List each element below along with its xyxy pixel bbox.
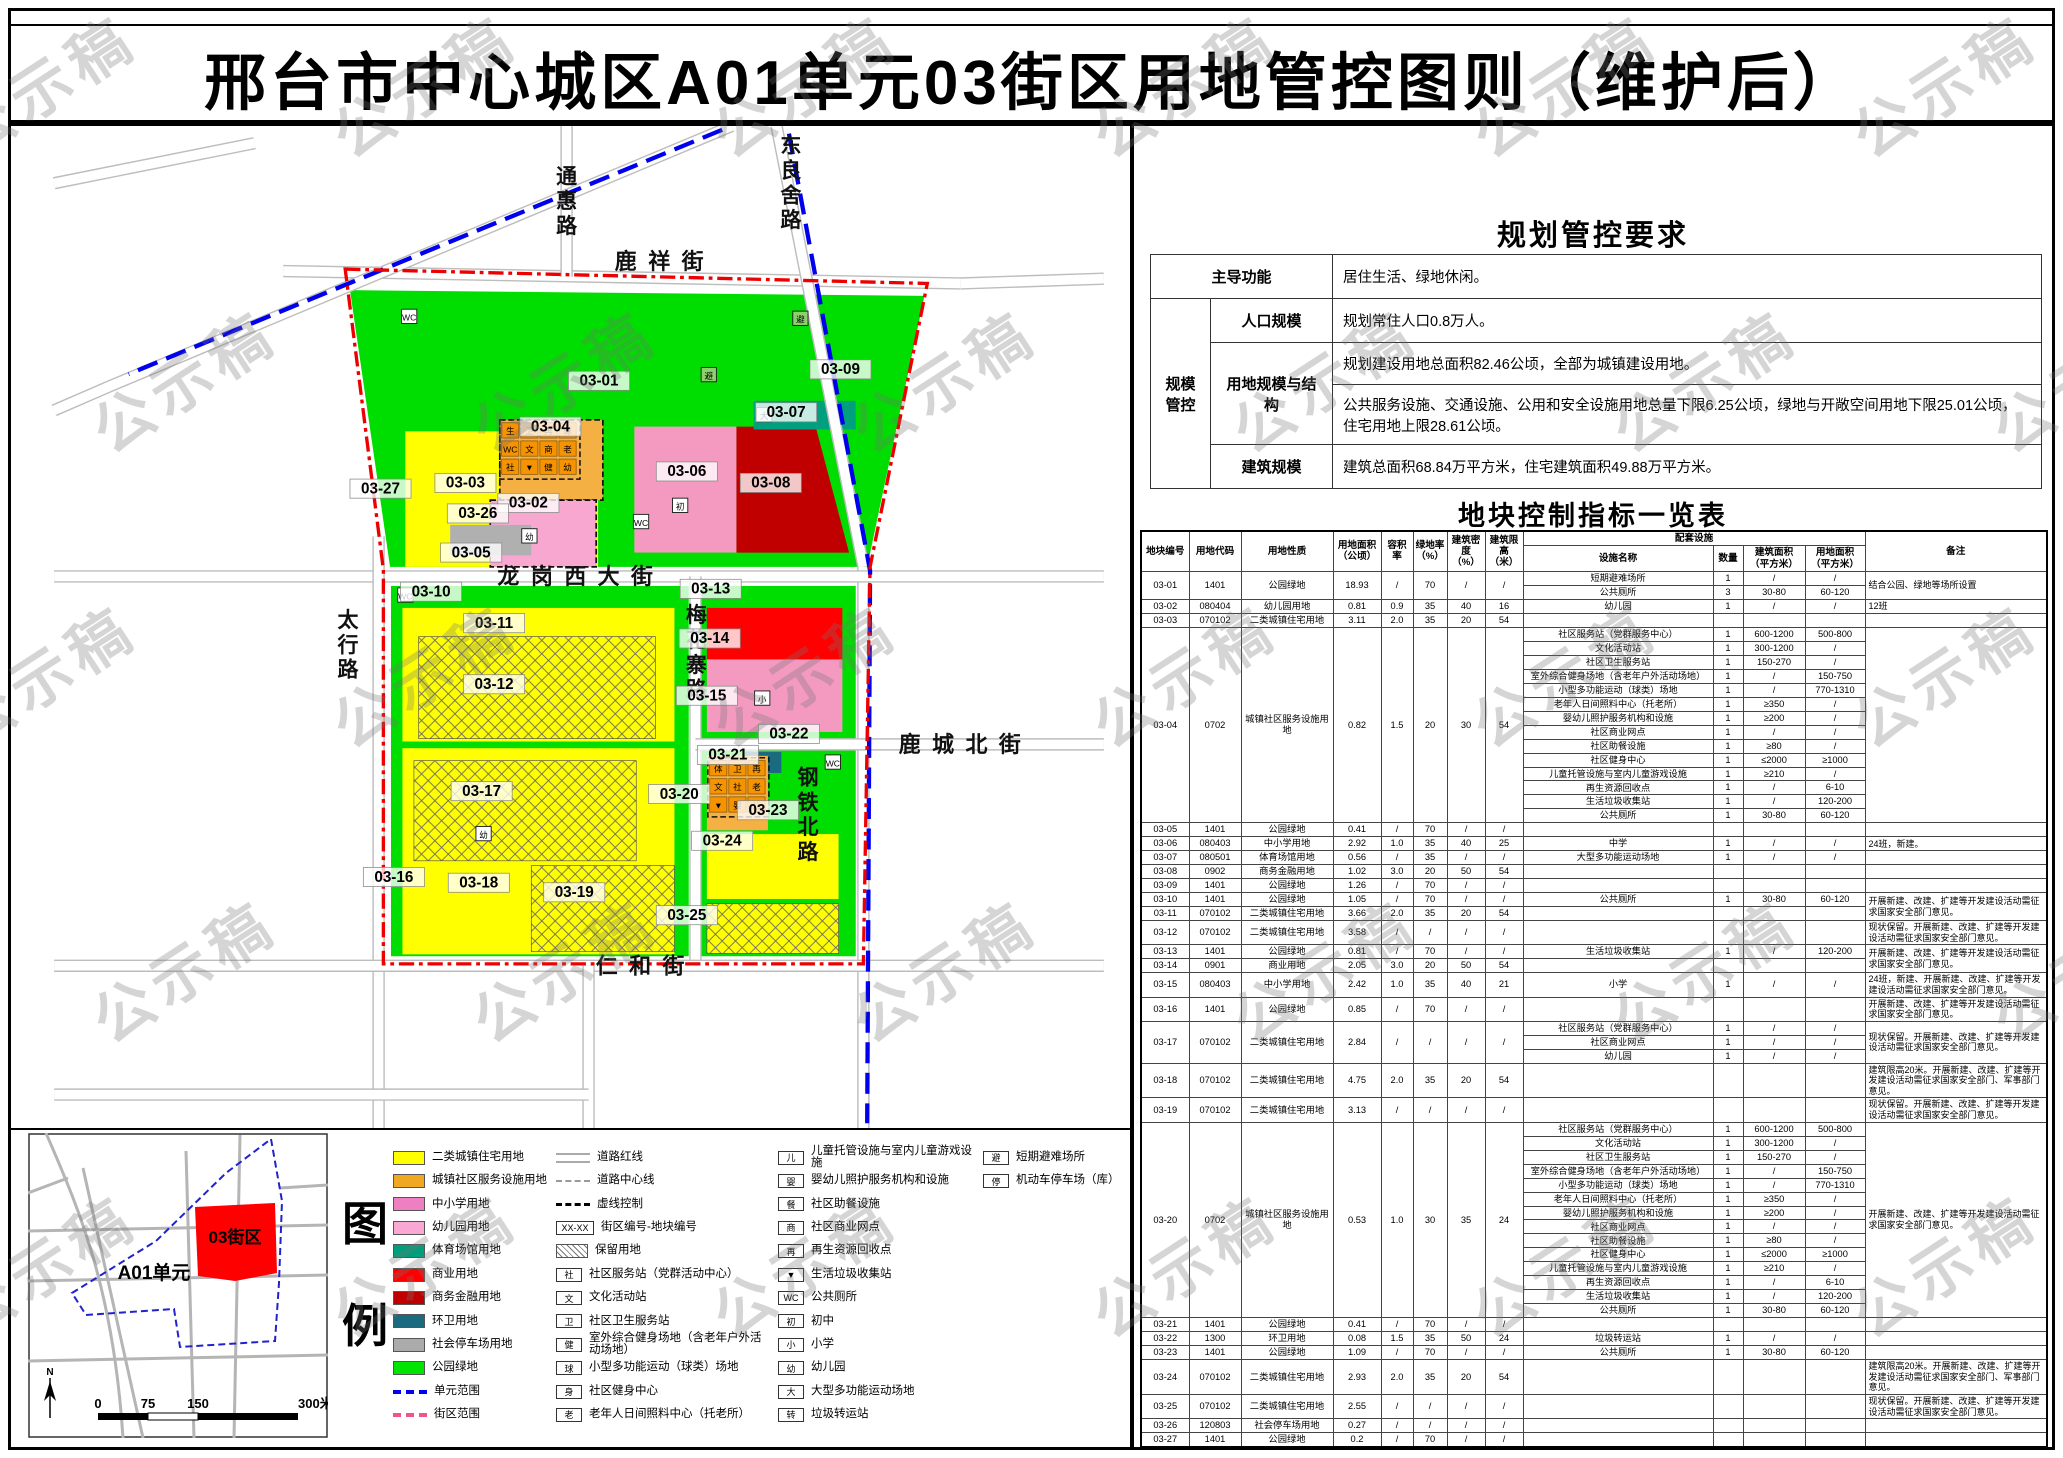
c-fname (1523, 997, 1713, 1021)
legend-label: 社区服务站（党群活动中心） (589, 1269, 739, 1281)
c-fname (1523, 879, 1713, 893)
c-height: 24 (1485, 1122, 1523, 1318)
svg-text:文: 文 (525, 443, 534, 454)
c-fqty: 1 (1713, 1049, 1743, 1063)
plot-row-03-13: 03-131401公园绿地0.81/70//生活垃圾收集站1/120-200开展… (1141, 945, 2047, 959)
c-code: 080404 (1189, 599, 1241, 613)
col-header: 备注 (1865, 531, 2047, 571)
c-flarea (1805, 865, 1865, 879)
legend-label: 短期避难场所 (1016, 1152, 1085, 1164)
c-id: 03-01 (1141, 571, 1189, 599)
c-area: 3.58 (1333, 921, 1381, 945)
c-fname (1523, 907, 1713, 921)
plot-control-table-title: 地块控制指标一览表 (1136, 494, 2050, 533)
c-use: 二类城镇住宅用地 (1241, 921, 1333, 945)
zone-label-03-17: 03-17 (451, 782, 512, 801)
c-height: 54 (1485, 1063, 1523, 1098)
c-fbarea: 30-80 (1743, 809, 1805, 823)
c-area: 0.41 (1333, 823, 1381, 837)
legend-label: 儿童托管设施与室内儿童游戏设施 (811, 1146, 983, 1169)
legend-label: 城镇社区服务设施用地 (432, 1175, 547, 1187)
c-flarea: 6-10 (1805, 1276, 1865, 1290)
c-fqty: 1 (1713, 795, 1743, 809)
c-height: / (1485, 1318, 1523, 1332)
c-id: 03-18 (1141, 1063, 1189, 1098)
plot-row-03-24: 03-24070102二类城镇住宅用地2.932.0352054建筑限高20米。… (1141, 1360, 2047, 1395)
c-id: 03-07 (1141, 851, 1189, 865)
c-fqty (1713, 1433, 1743, 1447)
c-note (1865, 1419, 2047, 1433)
c-far: / (1381, 879, 1413, 893)
legend-heading-1: 图 (340, 1188, 390, 1254)
legend-swatch (393, 1221, 425, 1235)
zone-03-25-hatch (707, 904, 839, 954)
c-flarea: 150-750 (1805, 1164, 1865, 1178)
svg-text:幼: 幼 (563, 461, 572, 472)
svg-text:03-10: 03-10 (412, 583, 451, 600)
plot-control-table: 地块编号用地代码用地性质用地面积 （公顷）容积率绿地率 （%）建筑密度 （%）建… (1140, 530, 2048, 1448)
plot-control-table-wrap: 地块编号用地代码用地性质用地面积 （公顷）容积率绿地率 （%）建筑密度 （%）建… (1140, 530, 2052, 1458)
c-height: 25 (1485, 837, 1523, 851)
c-fqty: 1 (1713, 893, 1743, 907)
c-green: 35 (1413, 837, 1447, 851)
c-flarea: / (1805, 973, 1865, 997)
c-height: 24 (1485, 1332, 1523, 1346)
svg-text:03-08: 03-08 (751, 475, 791, 492)
c-density: / (1447, 893, 1485, 907)
c-fqty: 1 (1713, 753, 1743, 767)
facility-icon-小: 小 (778, 1338, 804, 1352)
plot-row-03-12: 03-12070102二类城镇住宅用地3.58////现状保留。开展新建、改建、… (1141, 921, 2047, 945)
svg-text:03-03: 03-03 (446, 475, 485, 492)
legend-label: 单元范围 (434, 1386, 480, 1398)
street-label-通惠路: 通惠路 (556, 165, 578, 238)
c-fname (1523, 823, 1713, 837)
c-fqty (1713, 959, 1743, 973)
c-fname: 生活垃圾收集站 (1523, 1290, 1713, 1304)
c-density: / (1447, 1021, 1485, 1063)
c-density: 20 (1447, 1360, 1485, 1395)
c-code: 1401 (1189, 1346, 1241, 1360)
legend-label: 社区卫生服务站 (589, 1316, 670, 1328)
c-flarea: / (1805, 1206, 1865, 1220)
c-note: 建筑限高20米。开展新建、改建、扩建等开发建设活动需征求国家安全部门、军事部门意… (1865, 1063, 2047, 1098)
zone-label-03-24: 03-24 (692, 831, 753, 850)
c-fqty (1713, 921, 1743, 945)
c-fbarea (1743, 865, 1805, 879)
c-fbarea: / (1743, 571, 1805, 585)
street-fill-11 (54, 143, 254, 183)
legend-item-幼儿园: 幼幼儿园 (778, 1357, 983, 1380)
legend-swatch (393, 1174, 425, 1188)
facility-icon-停: 停 (983, 1174, 1009, 1188)
c-green: / (1413, 1021, 1447, 1063)
legend-item-环卫用地: 环卫用地 (393, 1310, 547, 1333)
c-area: 0.08 (1333, 1332, 1381, 1346)
zone-label-03-10: 03-10 (401, 582, 462, 601)
c-fqty: 1 (1713, 837, 1743, 851)
c-fqty: 1 (1713, 1276, 1743, 1290)
c-code: 070102 (1189, 1021, 1241, 1063)
col-header: 用地代码 (1189, 531, 1241, 571)
svg-text:03-18: 03-18 (459, 875, 499, 892)
c-use: 商业用地 (1241, 959, 1333, 973)
legend-label: 大型多功能运动场地 (811, 1386, 915, 1398)
legend-item-室外综合健身场地（含老年户外活动场地）: 健室外综合健身场地（含老年户外活动场地） (556, 1333, 771, 1356)
zone-label-03-08: 03-08 (740, 473, 801, 492)
c-fname: 公共厕所 (1523, 809, 1713, 823)
map-marker-WC-10: WC (825, 755, 840, 769)
page-title: 邢台市中心城区A01单元03街区用地管控图则（维护后） (0, 32, 2063, 122)
c-fqty: 1 (1713, 683, 1743, 697)
c-far: 3.0 (1381, 959, 1413, 973)
c-fname (1523, 1433, 1713, 1447)
col-header: 用地性质 (1241, 531, 1333, 571)
c-area: 2.84 (1333, 1021, 1381, 1063)
c-area: 18.93 (1333, 571, 1381, 599)
legend-item-单元范围: 单元范围 (393, 1380, 547, 1403)
c-fbarea: 30-80 (1743, 1304, 1805, 1318)
legend-swatch (393, 1291, 425, 1305)
c-id: 03-21 (1141, 1318, 1189, 1332)
legend-label: 道路中心线 (597, 1175, 655, 1187)
c-area: 0.85 (1333, 997, 1381, 1021)
c-fbarea: ≤2000 (1743, 1248, 1805, 1262)
legend-item-垃圾转运站: 转垃圾转运站 (778, 1403, 983, 1426)
c-note (1865, 879, 2047, 893)
c-green: / (1413, 1098, 1447, 1122)
locator-unit-label: A01单元 (118, 1261, 191, 1284)
c-area: 0.56 (1333, 851, 1381, 865)
c-flarea (1805, 1433, 1865, 1447)
legend-item-街区编号-地块编号: XX-XX街区编号-地块编号 (556, 1216, 771, 1239)
c-code: 080403 (1189, 973, 1241, 997)
plot-row-03-27: 03-271401公园绿地0.2/70// (1141, 1433, 2047, 1447)
c-height: 54 (1485, 959, 1523, 973)
road-centerline-icon (556, 1180, 590, 1182)
c-density: / (1447, 571, 1485, 599)
c-area: 0.81 (1333, 599, 1381, 613)
c-fqty (1713, 879, 1743, 893)
c-area: 2.55 (1333, 1395, 1381, 1419)
c-id: 03-06 (1141, 837, 1189, 851)
c-height: / (1485, 1021, 1523, 1063)
c-flarea (1805, 879, 1865, 893)
c-far: 2.0 (1381, 1063, 1413, 1098)
legend-item-商业用地: 商业用地 (393, 1263, 547, 1286)
c-height: / (1485, 1098, 1523, 1122)
c-density: / (1447, 879, 1485, 893)
svg-text:03-20: 03-20 (660, 786, 699, 803)
c-fbarea: / (1743, 1220, 1805, 1234)
c-height: 54 (1485, 1360, 1523, 1395)
c-area: 0.81 (1333, 945, 1381, 959)
c-code: 080403 (1189, 837, 1241, 851)
svg-text:WC: WC (634, 518, 648, 528)
c-fqty (1713, 823, 1743, 837)
legend-swatch (393, 1314, 425, 1328)
legend-item-短期避难场所: 避短期避难场所 (983, 1146, 1120, 1169)
c-fqty: 1 (1713, 945, 1743, 959)
legend-swatch (393, 1151, 425, 1165)
c-fbarea: / (1743, 1021, 1805, 1035)
legend-item-虚线控制: 虚线控制 (556, 1193, 771, 1216)
c-green: 35 (1413, 907, 1447, 921)
c-flarea: / (1805, 1234, 1865, 1248)
c-fqty: 3 (1713, 585, 1743, 599)
street-label-太行路: 太行路 (337, 609, 360, 682)
c-fbarea: ≥200 (1743, 711, 1805, 725)
c-green: / (1413, 1395, 1447, 1419)
c-fqty: 1 (1713, 1346, 1743, 1360)
c-note: 现状保留。开展新建、改建、扩建等开发建设活动需征求国家安全部门意见。 (1865, 1098, 2047, 1122)
legend-label: 商业用地 (432, 1269, 478, 1281)
c-area: 0.2 (1333, 1433, 1381, 1447)
zone-label-03-05: 03-05 (441, 543, 502, 562)
zone-label-03-06: 03-06 (656, 462, 717, 481)
svg-text:03-11: 03-11 (475, 615, 514, 632)
c-fname: 儿童托管设施与室内儿童游戏设施 (1523, 1262, 1713, 1276)
c-note: 24班，新建、开展新建、改建、扩建等开发建设活动需征求国家安全部门意见。 (1865, 973, 2047, 997)
zone-label-03-03: 03-03 (435, 473, 496, 492)
svg-text:初: 初 (676, 501, 685, 512)
c-note: 现状保留。开展新建、改建、扩建等开发建设活动需征求国家安全部门意见。 (1865, 1021, 2047, 1063)
c-flarea: / (1805, 1192, 1865, 1206)
legend-column-lines-facilities: 道路红线道路中心线虚线控制XX-XX街区编号-地块编号保留用地社社区服务站（党群… (556, 1146, 771, 1427)
c-density: / (1447, 851, 1485, 865)
legend-label: 老年人日间照料中心（托老所） (589, 1409, 750, 1421)
c-code: 1401 (1189, 1318, 1241, 1332)
facility-icon-儿: 儿 (778, 1151, 804, 1165)
legend-item-文化活动站: 文文化活动站 (556, 1286, 771, 1309)
c-fbarea (1743, 1419, 1805, 1433)
plot-row-03-17: 03-17070102二类城镇住宅用地2.84////社区服务站（党群服务中心）… (1141, 1021, 2047, 1035)
zone-03-12-hatch (419, 637, 656, 739)
plot-row-03-25: 03-25070102二类城镇住宅用地2.55////现状保留。开展新建、改建、… (1141, 1395, 2047, 1419)
c-use: 二类城镇住宅用地 (1241, 907, 1333, 921)
svg-text:WC: WC (826, 758, 840, 768)
legend-label: 小学 (811, 1339, 834, 1351)
legend-label: 社会停车场用地 (432, 1339, 513, 1351)
c-flarea (1805, 1318, 1865, 1332)
c-density: 20 (1447, 613, 1485, 627)
c-fbarea (1743, 1098, 1805, 1122)
c-green: 70 (1413, 823, 1447, 837)
c-fqty: 1 (1713, 1248, 1743, 1262)
plot-row-03-07: 03-07080501体育场馆用地0.56/35//大型多功能运动场地1// (1141, 851, 2047, 865)
reserved-land-icon (556, 1244, 588, 1258)
c-flarea (1805, 823, 1865, 837)
c-fbarea: ≥80 (1743, 739, 1805, 753)
zone-label-03-15: 03-15 (676, 686, 737, 705)
c-use: 公园绿地 (1241, 571, 1333, 599)
c-note: 12班 (1865, 599, 2047, 613)
c-fbarea: / (1743, 1035, 1805, 1049)
c-fname: 社区卫生服务站 (1523, 655, 1713, 669)
facility-icon-避: 避 (983, 1151, 1009, 1165)
c-height: / (1485, 571, 1523, 599)
c-far: 2.0 (1381, 613, 1413, 627)
c-fname: 社区健身中心 (1523, 1248, 1713, 1262)
c-far: / (1381, 945, 1413, 959)
c-green: 70 (1413, 879, 1447, 893)
c-use: 公园绿地 (1241, 1433, 1333, 1447)
c-fname (1523, 921, 1713, 945)
legend-item-道路红线: 道路红线 (556, 1146, 771, 1169)
c-use: 二类城镇住宅用地 (1241, 1021, 1333, 1063)
c-flarea: 500-800 (1805, 627, 1865, 641)
locator-frame (29, 1134, 327, 1437)
legend-label: 垃圾转运站 (811, 1409, 869, 1421)
c-use: 二类城镇住宅用地 (1241, 1395, 1333, 1419)
c-flarea: / (1805, 725, 1865, 739)
legend-item-机动车停车场（库）: 停机动车停车场（库） (983, 1169, 1120, 1192)
legend-swatch (393, 1338, 425, 1352)
svg-text:03-16: 03-16 (374, 869, 413, 886)
c-id: 03-09 (1141, 879, 1189, 893)
c-fqty: 1 (1713, 1304, 1743, 1318)
c-height: 16 (1485, 599, 1523, 613)
c-fname: 幼儿园 (1523, 599, 1713, 613)
c-fname: 中学 (1523, 837, 1713, 851)
c-flarea: 60-120 (1805, 1304, 1865, 1318)
c-density: / (1447, 1419, 1485, 1433)
svg-text:老: 老 (752, 781, 761, 792)
c-far: / (1381, 997, 1413, 1021)
plot-row-03-06: 03-06080403中小学用地2.921.0354025中学1//24班，新建… (1141, 837, 2047, 851)
plan-sheet: 邢台市中心城区A01单元03街区用地管控图则（维护后） 生卫再球WC文商老社▼健… (0, 0, 2063, 1458)
c-fbarea (1743, 1318, 1805, 1332)
zone-label-03-12: 03-12 (464, 675, 525, 694)
c-fqty: 1 (1713, 1206, 1743, 1220)
c-fname (1523, 613, 1713, 627)
c-fqty: 1 (1713, 1136, 1743, 1150)
c-fbarea: ≥80 (1743, 1234, 1805, 1248)
legend-item-再生资源回收点: 再再生资源回收点 (778, 1240, 983, 1263)
plot-row-03-10: 03-101401公园绿地1.05/70//公共厕所130-8060-120开展… (1141, 893, 2047, 907)
facility-icon-身: 身 (556, 1385, 582, 1399)
c-id: 03-04 (1141, 627, 1189, 823)
c-fname: 小型多功能运动（球类）场地 (1523, 683, 1713, 697)
c-green: 70 (1413, 893, 1447, 907)
svg-text:避: 避 (796, 314, 805, 325)
svg-text:健: 健 (544, 462, 553, 472)
c-fbarea: 30-80 (1743, 585, 1805, 599)
c-fqty: 1 (1713, 1035, 1743, 1049)
c-flarea: / (1805, 571, 1865, 585)
legend-item-二类城镇住宅用地: 二类城镇住宅用地 (393, 1146, 547, 1169)
c-code: 1401 (1189, 945, 1241, 959)
c-flarea: 500-800 (1805, 1122, 1865, 1136)
c-far: / (1381, 851, 1413, 865)
c-flarea: 6-10 (1805, 781, 1865, 795)
c-fbarea (1743, 823, 1805, 837)
legend-label: 街区编号-地块编号 (601, 1222, 697, 1234)
c-use: 环卫用地 (1241, 1332, 1333, 1346)
c-fbarea (1743, 1360, 1805, 1395)
c-fname: 社区商业网点 (1523, 725, 1713, 739)
c-fqty (1713, 1098, 1743, 1122)
svg-text:文: 文 (714, 781, 723, 792)
legend-label: 保留用地 (595, 1245, 641, 1257)
legend-item-婴幼儿照护服务机构和设施: 婴婴幼儿照护服务机构和设施 (778, 1169, 983, 1192)
svg-text:幼: 幼 (479, 829, 488, 840)
c-note: 现状保留。开展新建、改建、扩建等开发建设活动需征求国家安全部门意见。 (1865, 921, 2047, 945)
c-fname: 儿童托管设施与室内儿童游戏设施 (1523, 767, 1713, 781)
row-value: 规划常住人口0.8万人。 (1333, 299, 2042, 343)
facility-icon-▼: ▼ (778, 1268, 804, 1282)
c-fbarea: 300-1200 (1743, 1136, 1805, 1150)
c-area: 2.93 (1333, 1360, 1381, 1395)
plot-row-03-19: 03-19070102二类城镇住宅用地3.13////现状保留。开展新建、改建、… (1141, 1098, 2047, 1122)
c-flarea: / (1805, 1150, 1865, 1164)
legend-item-幼儿园用地: 幼儿园用地 (393, 1216, 547, 1239)
c-green: 70 (1413, 571, 1447, 599)
c-fname: 公共厕所 (1523, 1304, 1713, 1318)
c-use: 公园绿地 (1241, 997, 1333, 1021)
svg-text:150: 150 (187, 1396, 209, 1411)
legend-item-小学: 小小学 (778, 1333, 983, 1356)
c-id: 03-26 (1141, 1419, 1189, 1433)
legend-item-生活垃圾收集站: ▼生活垃圾收集站 (778, 1263, 983, 1286)
c-flarea (1805, 1419, 1865, 1433)
c-note: 24班，新建。 (1865, 837, 2047, 851)
c-area: 2.42 (1333, 973, 1381, 997)
c-note (1865, 613, 2047, 627)
c-code: 070102 (1189, 1063, 1241, 1098)
c-height: / (1485, 851, 1523, 865)
c-flarea: ≥1000 (1805, 1248, 1865, 1262)
svg-text:03-07: 03-07 (767, 404, 806, 421)
legend-label: 初中 (811, 1316, 834, 1328)
road-redline-icon (556, 1153, 590, 1163)
c-fqty: 1 (1713, 739, 1743, 753)
c-id: 03-25 (1141, 1395, 1189, 1419)
zone-label-03-21: 03-21 (697, 745, 758, 764)
svg-text:03-25: 03-25 (667, 907, 707, 924)
c-fbarea (1743, 959, 1805, 973)
c-fqty: 1 (1713, 851, 1743, 865)
c-flarea: / (1805, 641, 1865, 655)
zone-label-03-09: 03-09 (810, 360, 871, 379)
c-fname: 短期避难场所 (1523, 571, 1713, 585)
legend-item-儿童托管设施与室内儿童游戏设施: 儿儿童托管设施与室内儿童游戏设施 (778, 1146, 983, 1169)
legend-label: 社区商业网点 (811, 1222, 880, 1234)
c-id: 03-11 (1141, 907, 1189, 921)
svg-text:社: 社 (506, 461, 515, 472)
legend-label: 社区健身中心 (589, 1386, 658, 1398)
legend-swatch (393, 1244, 425, 1258)
c-id: 03-10 (1141, 893, 1189, 907)
c-id: 03-20 (1141, 1122, 1189, 1318)
zoning-map: 生卫再球WC文商老社▼健幼体卫再文社老▼婴儿WC避避大初幼WCWC小幼WC通惠路… (28, 126, 1130, 1128)
c-far: / (1381, 823, 1413, 837)
c-fqty: 1 (1713, 627, 1743, 641)
c-density: 20 (1447, 907, 1485, 921)
c-fqty: 1 (1713, 711, 1743, 725)
c-fname: 再生资源回收点 (1523, 1276, 1713, 1290)
svg-text:03-26: 03-26 (458, 505, 497, 522)
legend-column-landuse: 二类城镇住宅用地城镇社区服务设施用地中小学用地幼儿园用地体育场馆用地商业用地商务… (393, 1146, 547, 1427)
c-use: 二类城镇住宅用地 (1241, 1063, 1333, 1098)
c-area: 3.11 (1333, 613, 1381, 627)
c-green: 20 (1413, 959, 1447, 973)
c-fbarea: / (1743, 669, 1805, 683)
c-id: 03-19 (1141, 1098, 1189, 1122)
c-far: / (1381, 1395, 1413, 1419)
c-far: 0.9 (1381, 599, 1413, 613)
c-density: / (1447, 1346, 1485, 1360)
